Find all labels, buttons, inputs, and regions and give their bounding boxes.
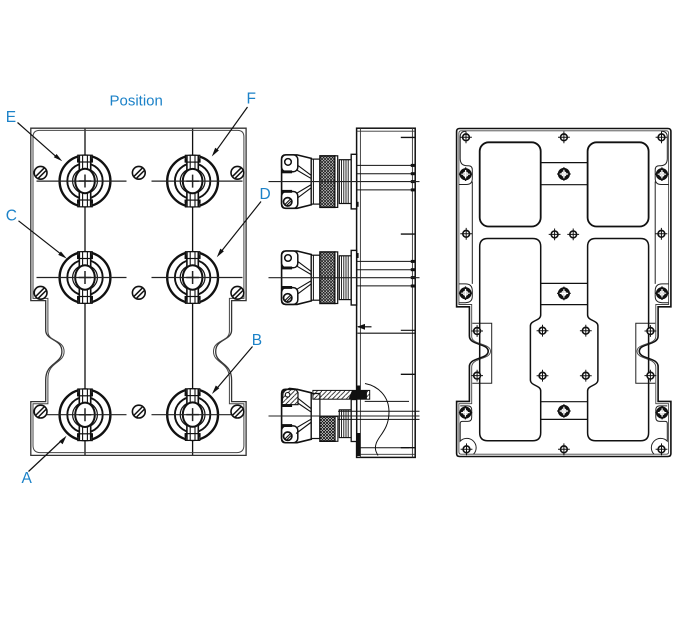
svg-text:Position: Position — [110, 92, 163, 109]
svg-text:F: F — [247, 91, 256, 108]
svg-text:B: B — [252, 332, 262, 349]
svg-text:C: C — [6, 207, 17, 224]
svg-text:D: D — [260, 186, 271, 203]
svg-text:E: E — [6, 109, 16, 126]
svg-text:A: A — [22, 470, 33, 487]
